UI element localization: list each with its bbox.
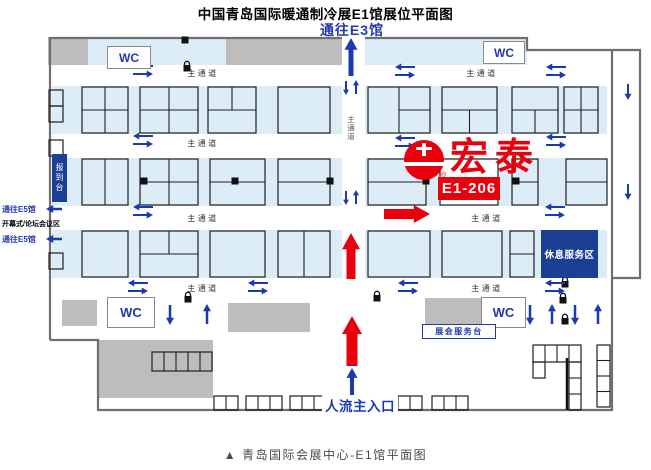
wc-bottom-left: WC (107, 297, 155, 328)
direction-arrow-icon (353, 190, 359, 204)
aisle-label: 主通道 (187, 213, 219, 223)
direction-arrow-icon (395, 72, 415, 79)
pillar-icon (141, 178, 148, 185)
highlighted-booth-badge: E1-206 (438, 177, 500, 200)
gate-icon (560, 297, 567, 304)
pillar-icon (232, 178, 239, 185)
to-e5-direction-label-1: 通往E5馆 (2, 204, 50, 215)
service-block (425, 298, 482, 326)
wc-top-right: WC (483, 41, 525, 64)
direction-arrow-icon (546, 142, 566, 149)
route-arrow-icon (342, 233, 360, 279)
direction-arrow-icon (546, 64, 566, 71)
booth-cell (290, 396, 326, 410)
direction-arrow-icon (398, 280, 418, 287)
rest-service-area-box: 休息服务区 (541, 230, 598, 278)
gate-icon (185, 296, 192, 303)
direction-arrow-icon (133, 141, 153, 148)
gate-icon (562, 281, 569, 288)
route-arrow-icon (384, 205, 430, 223)
aisle-label-vertical: 道 (347, 131, 355, 141)
service-block (228, 303, 310, 332)
gate-icon (375, 291, 380, 295)
direction-arrow-icon (526, 305, 534, 325)
direction-arrow-icon (571, 305, 579, 325)
direction-arrow-icon (398, 288, 418, 295)
service-block (98, 340, 213, 398)
aisle-label: 主通道 (187, 283, 219, 293)
aisle-label: 主通道 (187, 68, 219, 78)
direction-arrow-icon (546, 134, 566, 141)
direction-arrow-icon (546, 72, 566, 79)
booth-cell (569, 362, 581, 410)
aisle-label: 主通道 (471, 213, 503, 223)
aisle-label: 主通道 (187, 138, 219, 148)
registration-desk-badge: 报到台 (52, 154, 67, 202)
to-e5-direction-label-2: 通往E5馆 (2, 234, 50, 245)
direction-arrow-icon (128, 288, 148, 295)
service-block (48, 37, 88, 65)
direction-arrow-icon (128, 280, 148, 287)
direction-arrow-icon (133, 212, 153, 219)
service-block (226, 37, 342, 65)
route-arrow-icon (342, 316, 362, 366)
map-caption: ▲ 青岛国际会展中心-E1馆平面图 (0, 446, 651, 463)
aisle-label: 主通道 (471, 283, 503, 293)
direction-arrow-icon (343, 191, 349, 205)
direction-arrow-icon (345, 38, 358, 76)
brand-logo-text: 宏泰 (450, 139, 540, 177)
service-block (62, 300, 97, 326)
gate-icon (563, 314, 568, 318)
main-entrance-label: 人流主入口 (322, 395, 398, 415)
direction-arrow-icon (343, 81, 349, 95)
direction-arrow-icon (353, 80, 359, 94)
registered-trademark-mark: ® (441, 172, 446, 179)
booth-cell (432, 396, 468, 410)
direction-arrow-icon (248, 288, 268, 295)
aisle-label-vertical: 通 (347, 123, 355, 133)
booth-cell (246, 396, 282, 410)
gate-icon (561, 293, 566, 297)
aisle-label: 主通道 (466, 68, 498, 78)
exhibition-service-desk-label: 展会服务台 (422, 324, 496, 339)
wc-top-left: WC (107, 46, 151, 69)
direction-arrow-icon (248, 280, 268, 287)
booth-cell (533, 362, 545, 378)
opening-ceremony-area-label: 开幕式/论坛会议区 (2, 219, 72, 229)
direction-arrow-icon (625, 84, 632, 100)
direction-arrow-icon (166, 305, 174, 325)
direction-arrow-icon (203, 304, 211, 324)
direction-arrow-icon (625, 184, 632, 200)
direction-arrow-icon (545, 212, 565, 219)
direction-arrow-icon (133, 71, 153, 78)
pillar-icon (327, 178, 334, 185)
gate-icon (562, 318, 569, 325)
direction-arrow-icon (347, 368, 358, 396)
direction-arrow-icon (548, 304, 556, 324)
gate-icon (374, 295, 381, 302)
aisle-label-vertical: 主 (347, 114, 355, 124)
pillar-icon (182, 37, 189, 44)
direction-arrow-icon (594, 304, 602, 324)
